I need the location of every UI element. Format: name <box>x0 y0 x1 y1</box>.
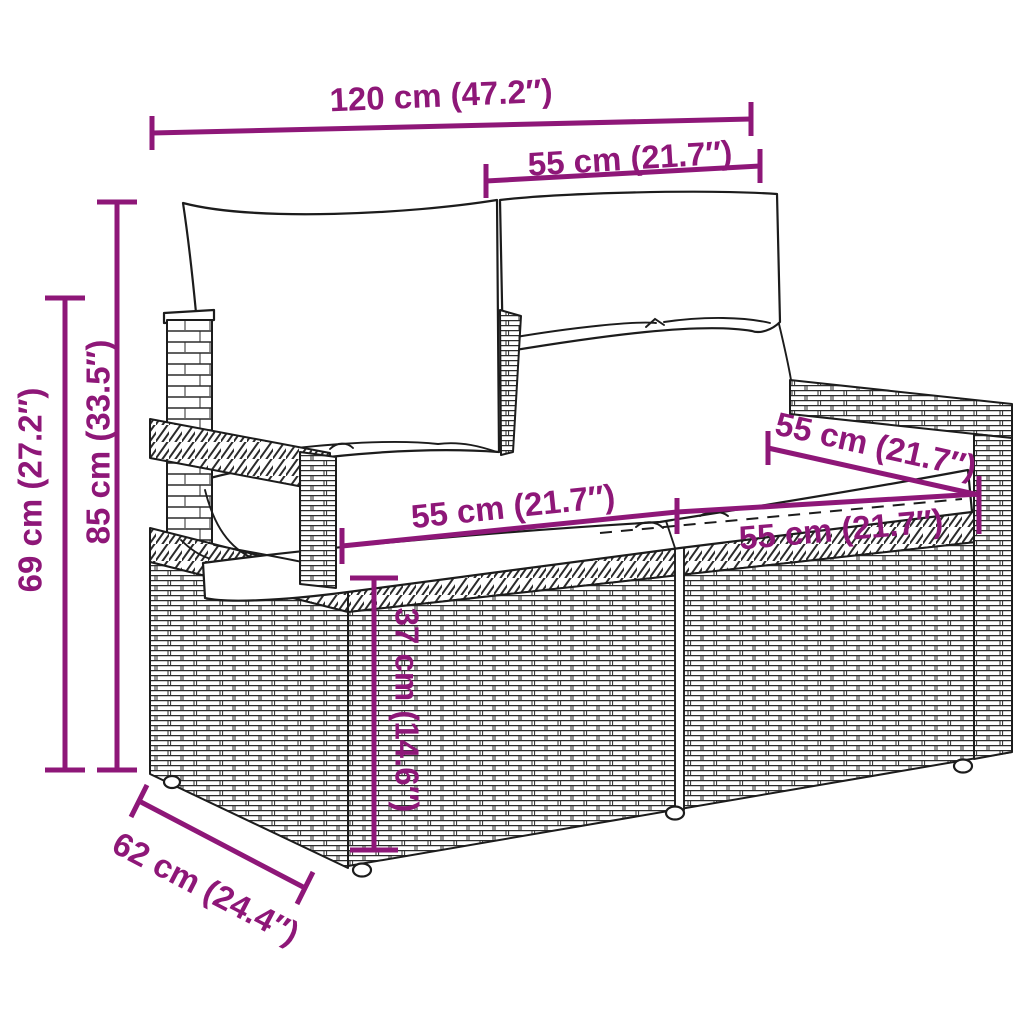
dimension-label: 85 cm (33.5″) <box>80 340 117 545</box>
backrest-wicker-strip <box>500 310 521 455</box>
dimension-label: 120 cm (47.2″) <box>329 72 554 119</box>
sofa-foot <box>666 807 684 820</box>
dimension-label: 37 cm (14.6″) <box>388 608 425 813</box>
left-armrest-front-post <box>300 452 336 588</box>
diagram-canvas: 120 cm (47.2″) 55 cm (21.7″) 85 cm (33.5… <box>0 0 1024 1024</box>
dimension-back-cushion-width: 55 cm (21.7″) <box>486 133 760 198</box>
sofa-foot <box>164 776 180 788</box>
dimension-label: 55 cm (21.7″) <box>527 133 734 182</box>
sofa-foot <box>353 864 371 877</box>
dimension-label: 62 cm (24.4″) <box>107 824 306 951</box>
module-seam-gap <box>675 545 684 812</box>
back-cushion-right <box>500 192 780 352</box>
dimension-label: 69 cm (27.2″) <box>12 388 49 593</box>
dimension-line <box>152 119 751 133</box>
dimension-armrest-height: 69 cm (27.2″) <box>12 298 85 770</box>
sofa-foot <box>954 760 972 773</box>
product-dimension-diagram: 120 cm (47.2″) 55 cm (21.7″) 85 cm (33.5… <box>0 0 1024 1024</box>
dimension-overall-height: 85 cm (33.5″) <box>80 202 137 770</box>
